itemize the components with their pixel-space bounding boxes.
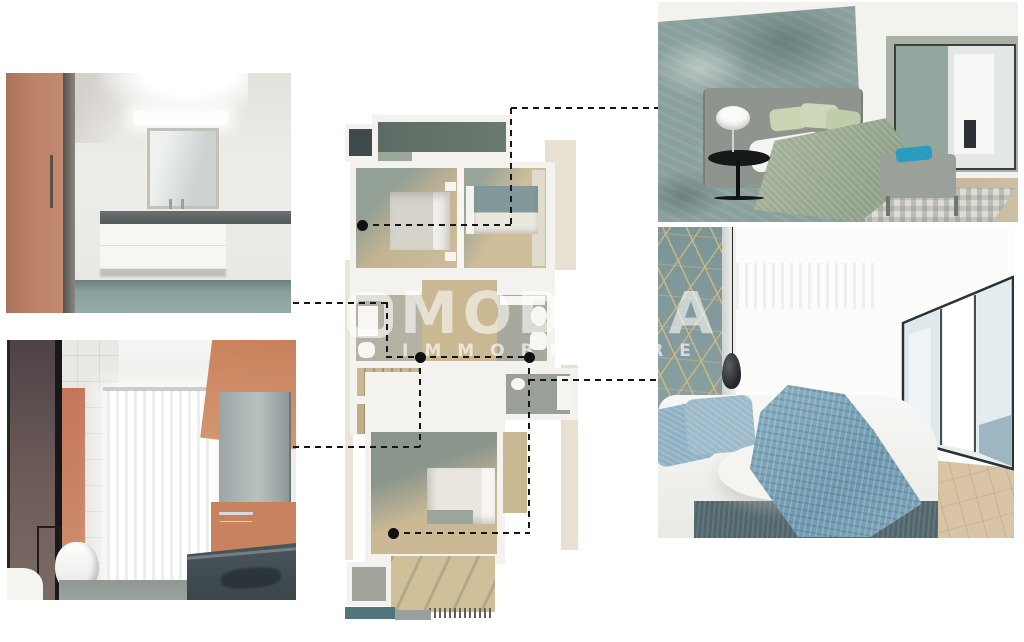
bathroom2-wc <box>7 568 43 600</box>
camera-dot-2 <box>415 352 426 363</box>
bathroom2-curtain-rod <box>103 387 219 391</box>
plan-balcony-teal <box>345 607 395 619</box>
plan-bed-right <box>466 186 538 234</box>
bedroom2-curtain-top <box>736 263 876 309</box>
plan-bed-bottom-throw <box>427 510 473 524</box>
plan-bottom-left-floor <box>352 567 386 601</box>
leader-line-8 <box>511 107 658 109</box>
bedroom1-lamp-stem <box>732 128 734 152</box>
bathroom1-countertop <box>100 211 291 224</box>
leader-line-1 <box>293 302 387 304</box>
leader-line-9 <box>393 532 530 534</box>
plan-bed-left <box>390 192 450 250</box>
plan-bedroom-divider-wall <box>457 168 464 268</box>
leader-line-10 <box>528 357 530 533</box>
photo-bedroom-blue <box>658 227 1014 538</box>
leader-line-5 <box>419 357 421 447</box>
bathroom2-floor <box>59 580 197 600</box>
plan-bath1-wc <box>358 342 375 358</box>
plan-bath3-sink <box>511 378 525 390</box>
bathroom1-cabinet-shadow <box>100 269 226 277</box>
bathroom2-orange-panel <box>62 388 85 548</box>
bedroom1-nightstand-leg <box>736 160 740 198</box>
leader-line-3 <box>386 356 529 358</box>
bedroom1-bench-legs <box>886 196 958 216</box>
bathroom1-door-edge <box>63 73 75 313</box>
camera-dot-4 <box>388 528 399 539</box>
plan-skylight <box>349 129 372 156</box>
watermark-title: MODENA <box>400 283 718 343</box>
bathroom2-mirror <box>219 392 291 508</box>
watermark-subtitle: IMMOBILIARE <box>402 341 707 361</box>
bathroom1-cabinet-seam <box>100 245 226 246</box>
leader-line-7 <box>510 108 512 225</box>
photo-bathroom-vanity <box>6 73 291 313</box>
photo-bathroom-shower <box>7 340 296 600</box>
bathroom1-faucet <box>169 199 172 209</box>
camera-dot-1 <box>357 220 368 231</box>
plan-nightstand-left-2 <box>445 252 456 261</box>
camera-dot-3 <box>524 352 535 363</box>
bathroom2-faucet-1 <box>219 512 253 515</box>
plan-bottom-terrace <box>391 556 495 612</box>
plan-bath3-counter <box>557 376 571 410</box>
bedroom2-wall-pillar <box>722 227 736 419</box>
plan-terrace-railing <box>429 608 493 618</box>
plan-nightstand-left-1 <box>445 182 456 191</box>
bedroom2-pendant-wire <box>732 227 733 355</box>
bathroom1-mirror-light <box>134 111 228 125</box>
photo-bedroom-green <box>658 2 1018 222</box>
leader-line-11 <box>529 379 658 381</box>
leader-line-6 <box>362 224 512 226</box>
bathroom1-floor <box>75 280 291 313</box>
brochure-page: MODENA IMMOBILIARE <box>0 0 1024 642</box>
plan-corridor-bottom <box>503 432 527 513</box>
bedroom1-mirror-object <box>964 120 976 148</box>
bathroom1-cabinet <box>100 224 226 270</box>
bathroom1-mirror <box>147 128 219 209</box>
floor-plan <box>345 110 578 622</box>
plan-terrace-step <box>378 152 412 161</box>
leader-line-2 <box>386 302 388 358</box>
plan-balcony-gray <box>395 610 431 620</box>
bedroom1-lamp-shade <box>716 106 750 130</box>
bedroom2-pendant-vase <box>722 353 741 389</box>
plan-terrace-top <box>378 122 506 152</box>
leader-line-4 <box>293 446 421 448</box>
